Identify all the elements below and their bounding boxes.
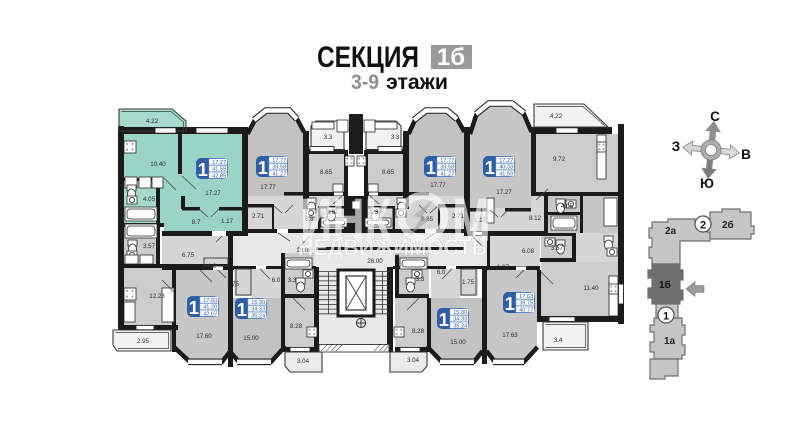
- svg-text:34.33: 34.33: [453, 317, 467, 323]
- svg-text:41.20: 41.20: [203, 305, 217, 311]
- svg-text:8.65: 8.65: [320, 169, 333, 176]
- svg-text:15.00: 15.00: [243, 335, 259, 342]
- svg-text:1: 1: [189, 297, 199, 318]
- svg-text:39.58: 39.58: [272, 165, 286, 171]
- svg-text:1.75: 1.75: [227, 281, 240, 288]
- svg-text:3.04: 3.04: [297, 358, 310, 365]
- svg-text:17.60: 17.60: [196, 333, 212, 340]
- svg-text:15.00: 15.00: [450, 339, 466, 346]
- svg-text:4.22: 4.22: [146, 118, 159, 125]
- svg-text:1: 1: [258, 157, 268, 178]
- svg-text:Ю: Ю: [700, 176, 714, 191]
- svg-text:41.59: 41.59: [499, 171, 513, 177]
- svg-text:4.22: 4.22: [550, 113, 563, 120]
- svg-text:17.27: 17.27: [496, 189, 512, 196]
- svg-text:3-9: 3-9: [351, 71, 379, 94]
- svg-text:41.27: 41.27: [440, 171, 454, 177]
- svg-text:3.3: 3.3: [324, 134, 333, 141]
- svg-text:15.00: 15.00: [453, 310, 467, 316]
- svg-text:4.05: 4.05: [143, 196, 156, 203]
- svg-text:9.72: 9.72: [553, 156, 566, 163]
- svg-text:8.28: 8.28: [290, 323, 303, 330]
- svg-text:1а: 1а: [664, 336, 676, 347]
- svg-text:41.59: 41.59: [212, 167, 226, 173]
- svg-text:2б: 2б: [722, 219, 734, 231]
- svg-text:3.3: 3.3: [288, 277, 297, 284]
- svg-text:НЕДВИЖИМОСТЬ: НЕДВИЖИМОСТЬ: [298, 234, 487, 260]
- svg-text:35.24: 35.24: [453, 323, 467, 329]
- svg-text:17.63: 17.63: [502, 332, 518, 339]
- svg-text:42.67: 42.67: [203, 311, 217, 317]
- svg-text:3.3: 3.3: [391, 134, 400, 141]
- svg-text:17.77: 17.77: [430, 182, 446, 189]
- svg-text:этажи: этажи: [386, 71, 448, 94]
- svg-text:2.95: 2.95: [137, 338, 150, 345]
- svg-text:1: 1: [198, 159, 208, 180]
- svg-text:3.4: 3.4: [554, 337, 563, 344]
- svg-text:СЕКЦИЯ: СЕКЦИЯ: [317, 41, 419, 74]
- svg-text:39.58: 39.58: [440, 165, 454, 171]
- svg-text:10.40: 10.40: [150, 161, 166, 168]
- svg-text:8.65: 8.65: [382, 169, 395, 176]
- svg-text:2а: 2а: [665, 226, 677, 237]
- svg-text:8.12: 8.12: [529, 215, 542, 222]
- svg-text:11.40: 11.40: [583, 285, 599, 292]
- svg-text:6.0: 6.0: [437, 269, 446, 276]
- svg-text:17.60: 17.60: [203, 298, 217, 304]
- svg-text:17.63: 17.63: [519, 294, 533, 300]
- svg-text:17.27: 17.27: [499, 158, 513, 164]
- svg-text:6.75: 6.75: [182, 252, 195, 259]
- svg-text:6.0: 6.0: [272, 277, 281, 284]
- svg-text:1.75: 1.75: [462, 279, 475, 286]
- svg-text:2: 2: [700, 220, 706, 232]
- svg-text:1: 1: [237, 299, 247, 320]
- svg-text:42.85: 42.85: [212, 173, 226, 179]
- svg-text:17.27: 17.27: [205, 190, 221, 197]
- svg-text:17.77: 17.77: [440, 158, 454, 164]
- svg-text:1.0: 1.0: [208, 263, 217, 270]
- svg-text:В: В: [741, 147, 751, 162]
- svg-text:35.24: 35.24: [251, 313, 265, 319]
- svg-text:1.07: 1.07: [497, 264, 510, 271]
- svg-text:8.7: 8.7: [192, 219, 201, 226]
- svg-text:З: З: [672, 139, 680, 154]
- svg-text:1: 1: [426, 157, 436, 178]
- svg-text:40.77: 40.77: [519, 307, 533, 313]
- svg-text:3.3: 3.3: [416, 276, 425, 283]
- svg-text:2.71: 2.71: [252, 213, 265, 220]
- svg-text:1: 1: [505, 293, 515, 314]
- svg-text:41.27: 41.27: [272, 171, 286, 177]
- svg-text:3.57: 3.57: [551, 245, 564, 252]
- svg-text:12.28: 12.28: [149, 293, 165, 300]
- svg-text:1.17: 1.17: [221, 218, 234, 225]
- svg-text:3.57: 3.57: [143, 243, 156, 250]
- svg-text:34.33: 34.33: [251, 307, 265, 313]
- svg-text:4.05: 4.05: [561, 203, 574, 210]
- svg-text:С: С: [710, 109, 720, 124]
- svg-text:1: 1: [663, 311, 669, 323]
- svg-text:40.33: 40.33: [499, 165, 513, 171]
- svg-text:17.77: 17.77: [260, 184, 276, 191]
- svg-text:3.04: 3.04: [407, 357, 420, 364]
- svg-text:15.00: 15.00: [251, 300, 265, 306]
- svg-text:1: 1: [485, 157, 495, 178]
- svg-text:39.75: 39.75: [519, 301, 533, 307]
- svg-text:8.28: 8.28: [412, 328, 425, 335]
- svg-text:1б: 1б: [437, 44, 465, 71]
- svg-text:17.27: 17.27: [212, 160, 226, 166]
- svg-text:1: 1: [439, 309, 449, 330]
- svg-text:1б: 1б: [659, 279, 671, 291]
- svg-text:6.08: 6.08: [522, 248, 535, 255]
- svg-text:17.77: 17.77: [272, 158, 286, 164]
